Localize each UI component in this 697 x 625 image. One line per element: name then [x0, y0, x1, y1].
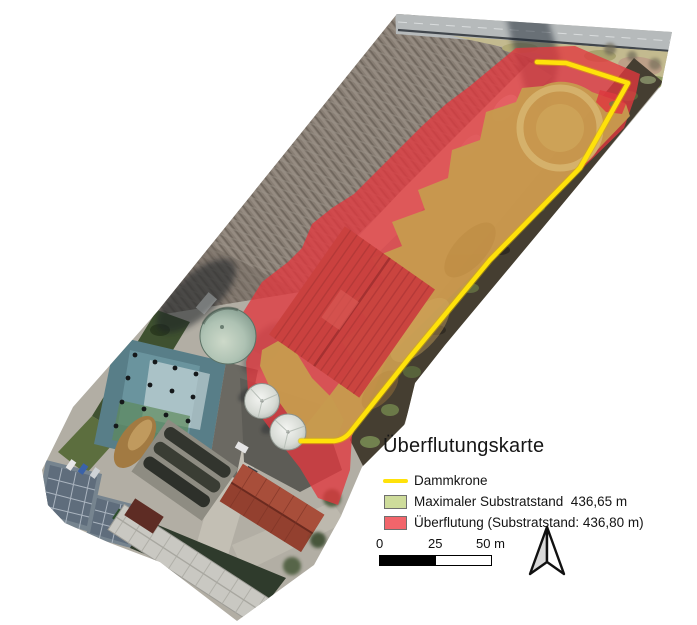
scale-bar-graphic: [379, 555, 492, 566]
scale-tick-50: 50 m: [476, 536, 505, 551]
dammkrone-line-swatch: [383, 479, 408, 483]
legend-item-substrate: Maximaler Substratstand 436,65 m: [383, 491, 683, 512]
map-canvas: Überflutungskarte Dammkrone Maximaler Su…: [0, 0, 697, 625]
legend-title: Überflutungskarte: [383, 435, 683, 458]
scale-tick-0: 0: [376, 536, 383, 551]
scale-bar: 0 25 50 m: [371, 536, 511, 562]
legend-label: Maximaler Substratstand 436,65 m: [414, 494, 627, 509]
scale-tick-25: 25: [428, 536, 442, 551]
legend-item-dammkrone: Dammkrone: [383, 470, 683, 491]
substrate-area-swatch: [383, 495, 408, 509]
map-legend: Überflutungskarte Dammkrone Maximaler Su…: [383, 435, 683, 533]
north-arrow: [524, 524, 570, 578]
legend-label: Dammkrone: [414, 473, 488, 488]
flood-area-swatch: [383, 516, 408, 530]
